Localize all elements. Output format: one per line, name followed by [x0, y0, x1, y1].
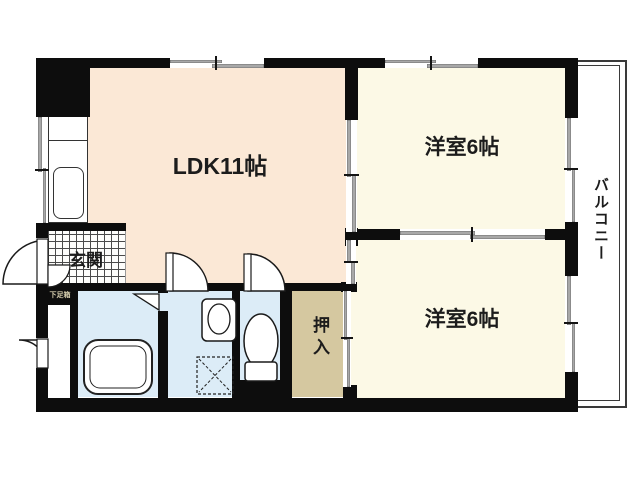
toilet-door-leaf: [244, 254, 251, 291]
washroom-door-arc: [170, 253, 208, 291]
entrance-door-leaf: [37, 239, 48, 284]
floorplan: 下足箱: [0, 0, 640, 480]
bedroom-bottom-label: 洋室6帖: [392, 303, 532, 333]
entrance-label: 玄関: [56, 246, 116, 271]
fixtures-overlay: [0, 0, 640, 480]
ldk-label: LDK11帖: [150, 147, 290, 181]
closet-label: 押入: [307, 316, 332, 382]
balcony-label: バルコニー: [590, 177, 611, 297]
toilet-tank: [245, 362, 277, 381]
toilet-bowl: [244, 314, 278, 368]
service-door-leaf: [37, 339, 48, 368]
washroom-door-leaf: [166, 253, 173, 291]
bath-bifold-door: [134, 294, 159, 310]
sink-bowl: [208, 304, 230, 334]
toilet-door-arc: [248, 254, 285, 291]
bedroom-top-label: 洋室6帖: [392, 131, 532, 161]
